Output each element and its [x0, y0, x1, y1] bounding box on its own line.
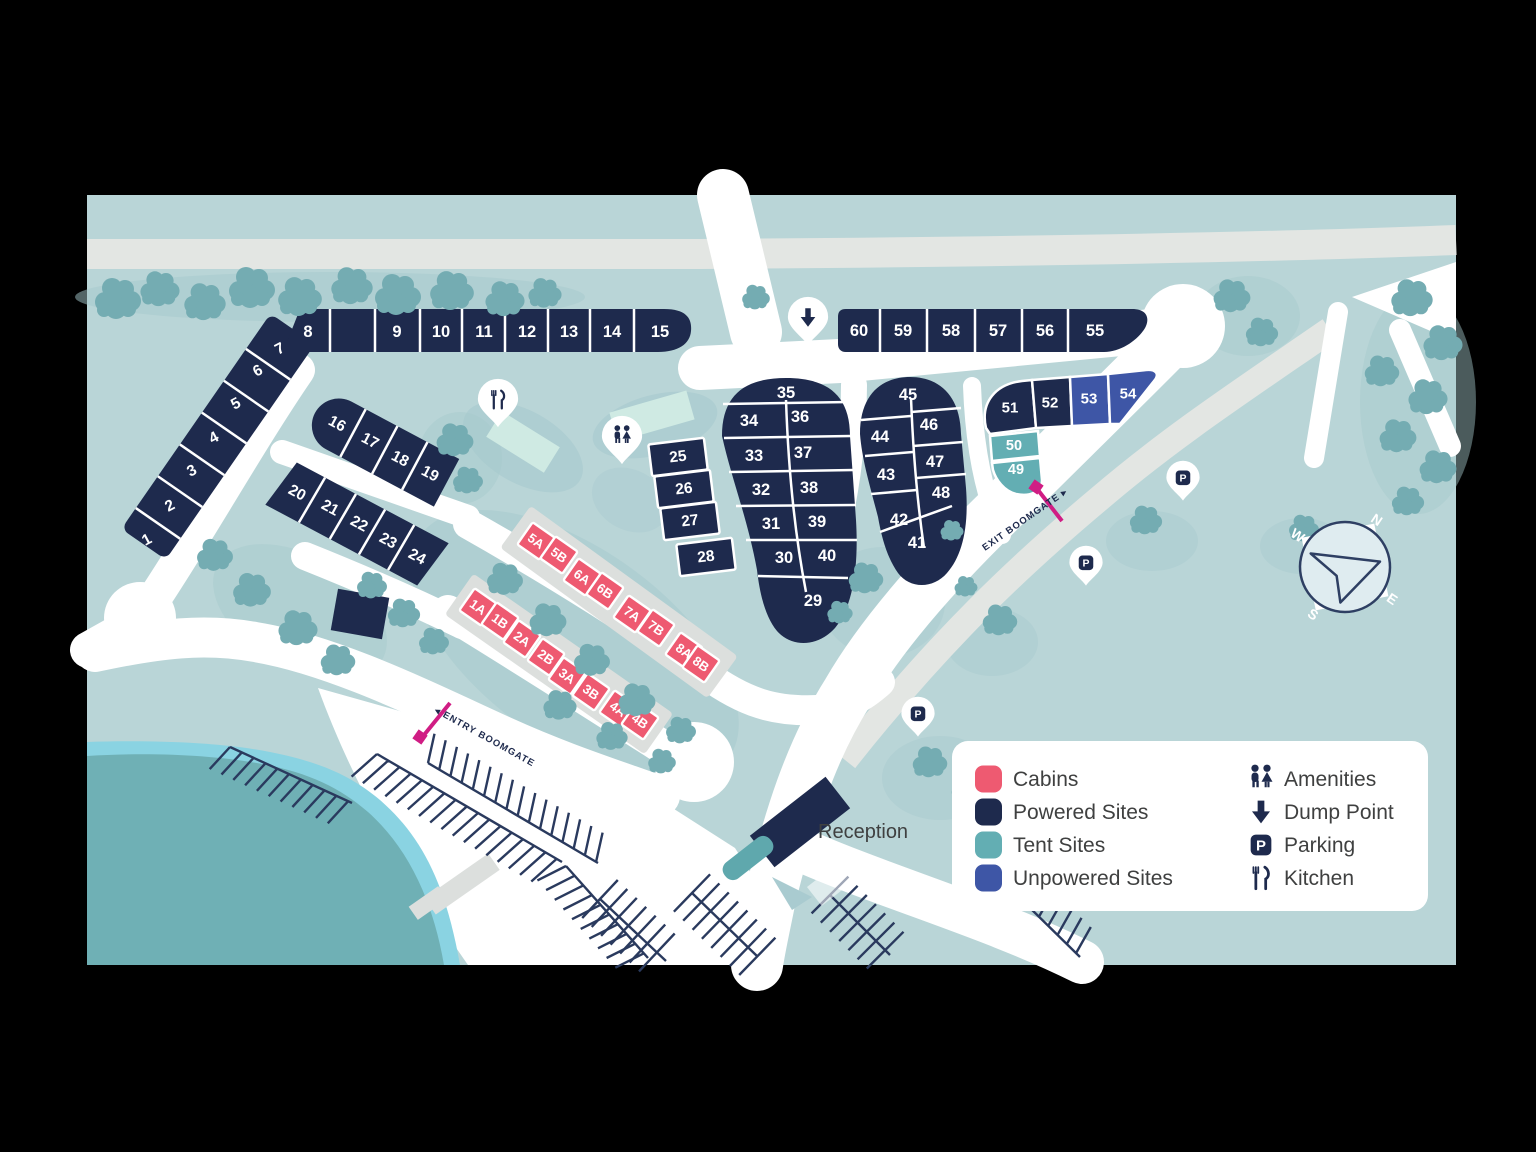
screenshot-stage: P: [0, 0, 1536, 1152]
parking-icon: [1176, 471, 1191, 486]
site-label-51: 51: [1002, 400, 1019, 417]
site-label-37: 37: [794, 444, 812, 462]
site-label-9: 9: [392, 323, 401, 341]
site-label-25: 25: [668, 447, 688, 466]
site-label-50: 50: [1006, 438, 1022, 454]
legend-swatch-unpowered: [975, 865, 1002, 892]
site-label-11: 11: [475, 323, 492, 341]
reception-label: Reception: [818, 821, 908, 843]
site-label-30: 30: [775, 549, 793, 567]
site-label-44: 44: [871, 428, 890, 446]
site-label-38: 38: [800, 479, 818, 497]
site-label-55: 55: [1086, 322, 1104, 340]
legend: Cabins Powered Sites Tent Sites Unpowere…: [952, 741, 1428, 911]
legend-swatch-cabins: [975, 766, 1002, 793]
site-label-33: 33: [745, 447, 763, 465]
legend-swatch-tent: [975, 832, 1002, 859]
site-label-46: 46: [920, 416, 938, 434]
legend-label-dump: Dump Point: [1284, 801, 1394, 824]
site-label-10: 10: [432, 323, 450, 341]
site-label-47: 47: [926, 453, 944, 471]
legend-label-powered: Powered Sites: [1013, 801, 1148, 824]
site-label-52: 52: [1042, 395, 1059, 412]
site-label-48: 48: [932, 484, 950, 502]
site-label-31: 31: [762, 515, 780, 533]
site-label-40: 40: [818, 547, 836, 565]
site-label-59: 59: [894, 322, 912, 340]
site-label-13: 13: [560, 323, 578, 341]
site-label-14: 14: [603, 323, 622, 341]
site-label-58: 58: [942, 322, 960, 340]
site-label-12: 12: [518, 323, 536, 341]
site-label-45: 45: [899, 386, 917, 404]
site-label-42: 42: [890, 511, 908, 529]
site-label-53: 53: [1081, 391, 1098, 408]
legend-swatch-powered: [975, 799, 1002, 826]
site-label-32: 32: [752, 481, 770, 499]
site-label-35: 35: [777, 384, 795, 402]
legend-label-unpowered: Unpowered Sites: [1013, 867, 1173, 890]
site-label-8: 8: [303, 323, 312, 341]
site-label-57: 57: [989, 322, 1007, 340]
legend-label-tent: Tent Sites: [1013, 834, 1105, 857]
site-label-15: 15: [651, 323, 669, 341]
legend-label-cabins: Cabins: [1013, 768, 1078, 791]
cul-de-sac-west: [104, 582, 176, 654]
road-bulb: [1141, 284, 1225, 368]
site-label-27: 27: [680, 512, 699, 531]
legend-label-kitchen: Kitchen: [1284, 867, 1354, 890]
top-highway: [87, 240, 1456, 254]
parking-icon: [911, 707, 926, 722]
site-label-39: 39: [808, 513, 826, 531]
site-label-56: 56: [1036, 322, 1054, 340]
legend-label-parking: Parking: [1284, 834, 1355, 857]
parking-icon: [1079, 556, 1094, 571]
site-label-54: 54: [1120, 386, 1137, 403]
site-label-60: 60: [850, 322, 868, 340]
site-label-49: 49: [1008, 462, 1024, 478]
legend-label-amenities: Amenities: [1284, 768, 1376, 791]
site-label-29: 29: [804, 592, 822, 610]
site-label-43: 43: [877, 466, 895, 484]
site-label-41: 41: [908, 534, 926, 552]
site-label-34: 34: [740, 412, 759, 430]
parking-icon: [1251, 835, 1272, 856]
site-label-26: 26: [674, 479, 694, 498]
site-label-28: 28: [696, 547, 716, 566]
site-label-36: 36: [791, 408, 809, 426]
